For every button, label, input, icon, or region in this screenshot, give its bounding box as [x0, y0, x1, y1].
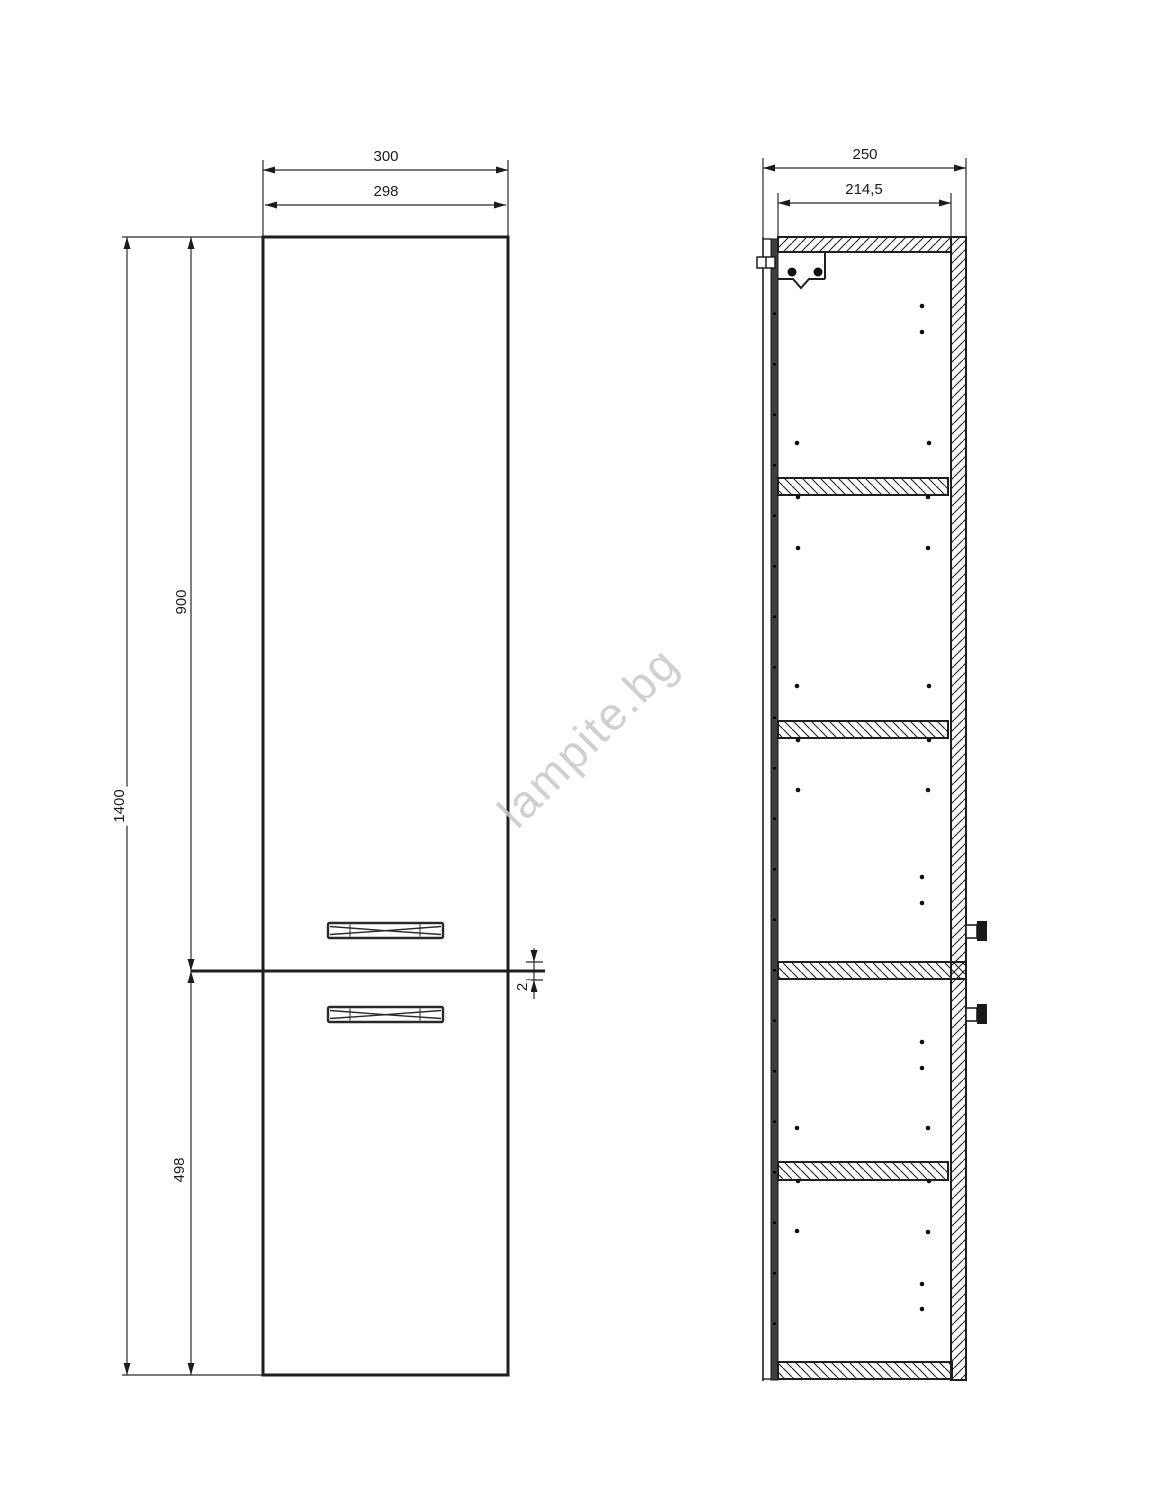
- door-section-strip: [771, 239, 778, 1380]
- dim-overall-depth: 250: [849, 147, 880, 163]
- wall-bracket: [778, 252, 825, 288]
- bottom-panel-section: [778, 1362, 952, 1379]
- door-handle-lower: [328, 1007, 443, 1022]
- drill-holes: [795, 304, 932, 1312]
- wall-fixing-screw-lower: [966, 1004, 987, 1024]
- shelf-3-fixed: [778, 962, 966, 979]
- shelf-4: [778, 1162, 948, 1180]
- front-cabinet-outline: [263, 237, 508, 1375]
- side-view: [757, 158, 987, 1381]
- shelf-2: [778, 721, 948, 738]
- front-view: [122, 160, 545, 1375]
- dim-door-gap: 2: [515, 980, 531, 994]
- dim-lower-door-height: 498: [172, 1154, 188, 1185]
- shelves: [778, 478, 966, 1180]
- top-panel-section: [778, 237, 951, 252]
- dim-upper-door-height: 900: [174, 586, 190, 617]
- dim-door-width: 298: [370, 184, 401, 200]
- door-handle-upper: [328, 923, 443, 938]
- dim-overall-width: 300: [370, 149, 401, 165]
- wall-fixing-screw-upper: [966, 921, 987, 941]
- hinge-plate: [757, 257, 775, 268]
- shelf-1: [778, 478, 948, 495]
- dim-overall-height: 1400: [112, 786, 128, 825]
- technical-drawing-canvas: 300 298 1400 900 498 2 250 214,5 lampite…: [0, 0, 1156, 1494]
- back-panel-section: [951, 237, 966, 1380]
- dim-inner-depth: 214,5: [842, 182, 886, 198]
